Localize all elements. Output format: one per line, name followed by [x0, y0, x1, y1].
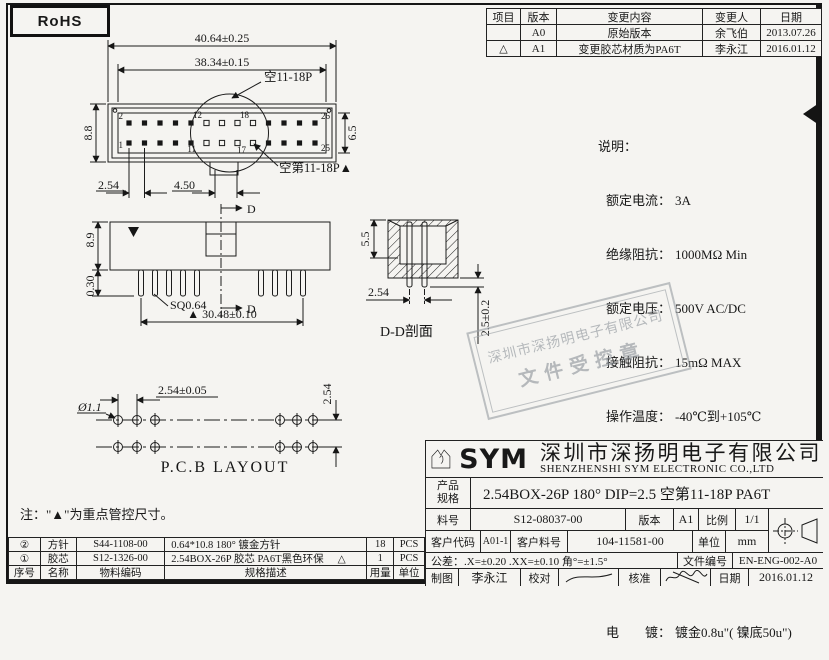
bom-no: ②	[9, 538, 41, 551]
dim-pin-length: 0.30	[84, 276, 97, 297]
pin-num-25: 25	[321, 143, 331, 153]
dim-hole-diameter: Ø1.1	[77, 400, 102, 414]
date-label: 日期	[711, 569, 749, 586]
pin-num-11: 11	[187, 144, 196, 154]
spec-label: 操作温度：	[606, 408, 671, 426]
customer-part-label: 客户料号	[511, 531, 568, 552]
control-dimension-note: 注："▲"为重点管控尺寸。	[20, 504, 173, 523]
rev-version: A0	[521, 25, 557, 40]
dim-row-spacing: 2.54	[320, 384, 334, 405]
bom-h-no: 序号	[9, 566, 41, 579]
dim-overall-width: 40.64±0.25	[195, 31, 250, 45]
product-spec-value: 2.54BOX-26P 180° DIP=2.5 空第11-18P PA6T	[471, 478, 822, 508]
through-hole-pins	[139, 270, 306, 296]
scale-value: 1/1	[736, 509, 769, 530]
part-no-value: S12-08037-00	[471, 509, 626, 530]
dim-inner-width: 38.34±0.15	[195, 55, 250, 69]
front-view-drawing: D D 8.9 0.30 SQ0.64 ▲ 30.48±0.10	[84, 196, 364, 346]
bom-header-row: 序号 名称 物料编码 规格描述 用量 单位	[9, 565, 424, 579]
rev-date: 2016.01.12	[761, 41, 821, 56]
rev-date: 2013.07.26	[761, 25, 821, 40]
scale-label: 比例	[699, 509, 736, 530]
tolerance-text: 公差：.X=±0.20 .XX=±0.10 角°=±1.5°	[426, 553, 678, 568]
revision-row-a1: △ A1 变更胶芯材质为PA6T 李永江 2016.01.12	[487, 40, 821, 56]
pin-num-2: 2	[119, 111, 124, 121]
spec-value: 3A	[675, 192, 691, 210]
bom-desc: 0.64*10.8 180° 镀金方针	[165, 538, 367, 551]
revision-table: 项目 版本 变更内容 变更人 日期 A0 原始版本 余飞伯 2013.07.26…	[486, 8, 822, 57]
signature-row: 制图 李永江 校对 核准 日期 2016.01.12	[426, 569, 823, 586]
dim-body-height: 8.9	[84, 233, 97, 248]
pin-num-12: 12	[193, 110, 202, 120]
spec-value: 镀金0.8u"( 镍底50u")	[675, 624, 792, 642]
pin-row-top	[126, 120, 317, 125]
spec-value: -40℃到+105℃	[675, 408, 761, 426]
dim-pitch: 2.54	[98, 178, 119, 192]
company-name-cn: 深圳市深扬明电子有限公司	[540, 442, 822, 464]
part-customer-rows: 料号 S12-08037-00 版本 A1 比例 1/1 客户代码 A01-1 …	[426, 509, 823, 553]
part-no-label: 料号	[426, 509, 471, 530]
doc-no-value: EN-ENG-002-A0	[733, 553, 823, 568]
unit-value: mm	[726, 531, 769, 552]
dim-section-pitch: 2.54	[368, 285, 389, 299]
bom-code: S12-1326-00	[77, 552, 166, 565]
bom-code: S44-1108-00	[77, 538, 166, 551]
checked-by-label: 校对	[521, 569, 559, 586]
section-label-d-top: D	[247, 202, 256, 216]
spec-title: 说明：	[598, 138, 792, 156]
dim-hole-pitch: 2.54±0.05	[158, 383, 207, 397]
bom-desc: 2.54BOX-26P 胶芯 PA6T黑色环保 △	[165, 552, 367, 565]
pin-num-1: 1	[119, 140, 124, 150]
pin-num-26: 26	[321, 111, 331, 121]
approved-signature	[663, 570, 709, 585]
customer-code-label: 客户代码	[426, 531, 481, 552]
dim-pin-span: ▲ 30.48±0.10	[187, 307, 256, 321]
rev-content: 原始版本	[557, 25, 703, 40]
spec-value: 500V AC/DC	[675, 300, 746, 318]
rev-person: 李永江	[703, 41, 761, 56]
checked-signature	[562, 571, 616, 585]
top-view-drawing: 40.64±0.25 38.34±0.15	[82, 30, 482, 202]
bom-h-name: 名称	[41, 566, 77, 579]
spec-value: 1000MΩ Min	[675, 246, 747, 264]
bom-h-code: 物料编码	[77, 566, 166, 579]
bom-qty: 18	[367, 538, 394, 551]
bom-unit: PCS	[394, 538, 424, 551]
rev-h-item: 项目	[487, 9, 521, 24]
rohs-label: RoHS	[38, 13, 83, 30]
unit-label: 单位	[693, 531, 726, 552]
company-row: SYM 深圳市深扬明电子有限公司 SHENZHENSHI SYM ELECTRO…	[426, 441, 823, 478]
skip-pins-label-top: 空11-18P	[264, 70, 312, 84]
rev-h-version: 版本	[521, 9, 557, 24]
bom-row-1: ① 胶芯 S12-1326-00 2.54BOX-26P 胶芯 PA6T黑色环保…	[9, 551, 424, 565]
doc-no-label: 文件编号	[678, 553, 733, 568]
control-mark-triangle-icon	[128, 227, 139, 237]
skip-pins-label-bottom: 空第11-18P▲	[279, 161, 352, 175]
skip-pins-highlight-circle	[191, 94, 269, 172]
product-label-line2: 规格	[437, 493, 459, 506]
pcb-layout-title: P.C.B LAYOUT	[161, 459, 290, 476]
dim-height-right: 6.5	[345, 126, 359, 141]
version-value: A1	[674, 509, 699, 530]
product-label-line1: 产品	[437, 480, 459, 493]
spec-label: 额定电流：	[606, 192, 671, 210]
revision-triangle-icon: △	[487, 41, 521, 56]
spec-label: 绝缘阻抗：	[606, 246, 671, 264]
dim-cavity-depth: 5.5	[358, 232, 372, 247]
version-label: 版本	[626, 509, 674, 530]
title-block: SYM 深圳市深扬明电子有限公司 SHENZHENSHI SYM ELECTRO…	[425, 440, 823, 586]
company-name-en: SHENZHENSHI SYM ELECTRONIC CO.,LTD	[540, 464, 822, 476]
rev-h-person: 变更人	[703, 9, 761, 24]
pin-num-18: 18	[240, 110, 250, 120]
rohs-badge: RoHS	[10, 5, 110, 37]
bom-h-qty: 用量	[367, 566, 394, 579]
bom-qty: 1	[367, 552, 394, 565]
date-value: 2016.01.12	[749, 569, 823, 586]
revision-header-row: 项目 版本 变更内容 变更人 日期	[487, 9, 821, 24]
pcb-holes	[114, 413, 318, 454]
sym-logo-text: SYM	[459, 446, 528, 473]
bom-table: ② 方针 S44-1108-00 0.64*10.8 180° 镀金方针 18 …	[8, 537, 425, 580]
bom-h-unit: 单位	[394, 566, 424, 579]
bom-h-desc: 规格描述	[165, 566, 367, 579]
tolerance-row: 公差：.X=±0.20 .XX=±0.10 角°=±1.5° 文件编号 EN-E…	[426, 553, 823, 569]
pin-row-bottom	[126, 140, 317, 145]
bom-row-2: ② 方针 S44-1108-00 0.64*10.8 180° 镀金方针 18 …	[9, 538, 424, 551]
rev-person: 余飞伯	[703, 25, 761, 40]
sym-logo-badge-icon	[430, 443, 453, 475]
rev-version: A1	[521, 41, 557, 56]
rev-marker	[487, 25, 521, 40]
bom-no: ①	[9, 552, 41, 565]
drawn-by-value: 李永江	[459, 569, 521, 586]
dim-gap: 4.50	[174, 178, 195, 192]
spec-label: 电 镀：	[606, 624, 671, 642]
bom-name: 胶芯	[41, 552, 77, 565]
projection-angle-icon	[771, 511, 821, 551]
bom-rev-marker-triangle-icon: △	[338, 553, 346, 565]
section-view-drawing: 5.5 2.54 2.5±0.2 D-D剖面	[356, 196, 496, 351]
product-spec-row: 产品 规格 2.54BOX-26P 180° DIP=2.5 空第11-18P …	[426, 478, 823, 509]
bom-unit: PCS	[394, 552, 424, 565]
drawn-by-label: 制图	[426, 569, 459, 586]
revision-row-a0: A0 原始版本 余飞伯 2013.07.26	[487, 24, 821, 40]
customer-part-value: 104-11581-00	[568, 531, 693, 552]
approved-by-label: 核准	[619, 569, 661, 586]
rev-h-content: 变更内容	[557, 9, 703, 24]
right-edge-mark	[803, 101, 822, 127]
section-title: D-D剖面	[380, 324, 433, 340]
pin-num-17: 17	[237, 145, 247, 155]
customer-code-value: A01-1	[481, 531, 511, 552]
dim-height-left: 8.8	[82, 126, 95, 141]
rev-content: 变更胶芯材质为PA6T	[557, 41, 703, 56]
rev-h-date: 日期	[761, 9, 821, 24]
bom-name: 方针	[41, 538, 77, 551]
pcb-layout-drawing: 2.54±0.05 Ø1.1 2.54 P.C.B LAYOUT	[30, 372, 365, 487]
